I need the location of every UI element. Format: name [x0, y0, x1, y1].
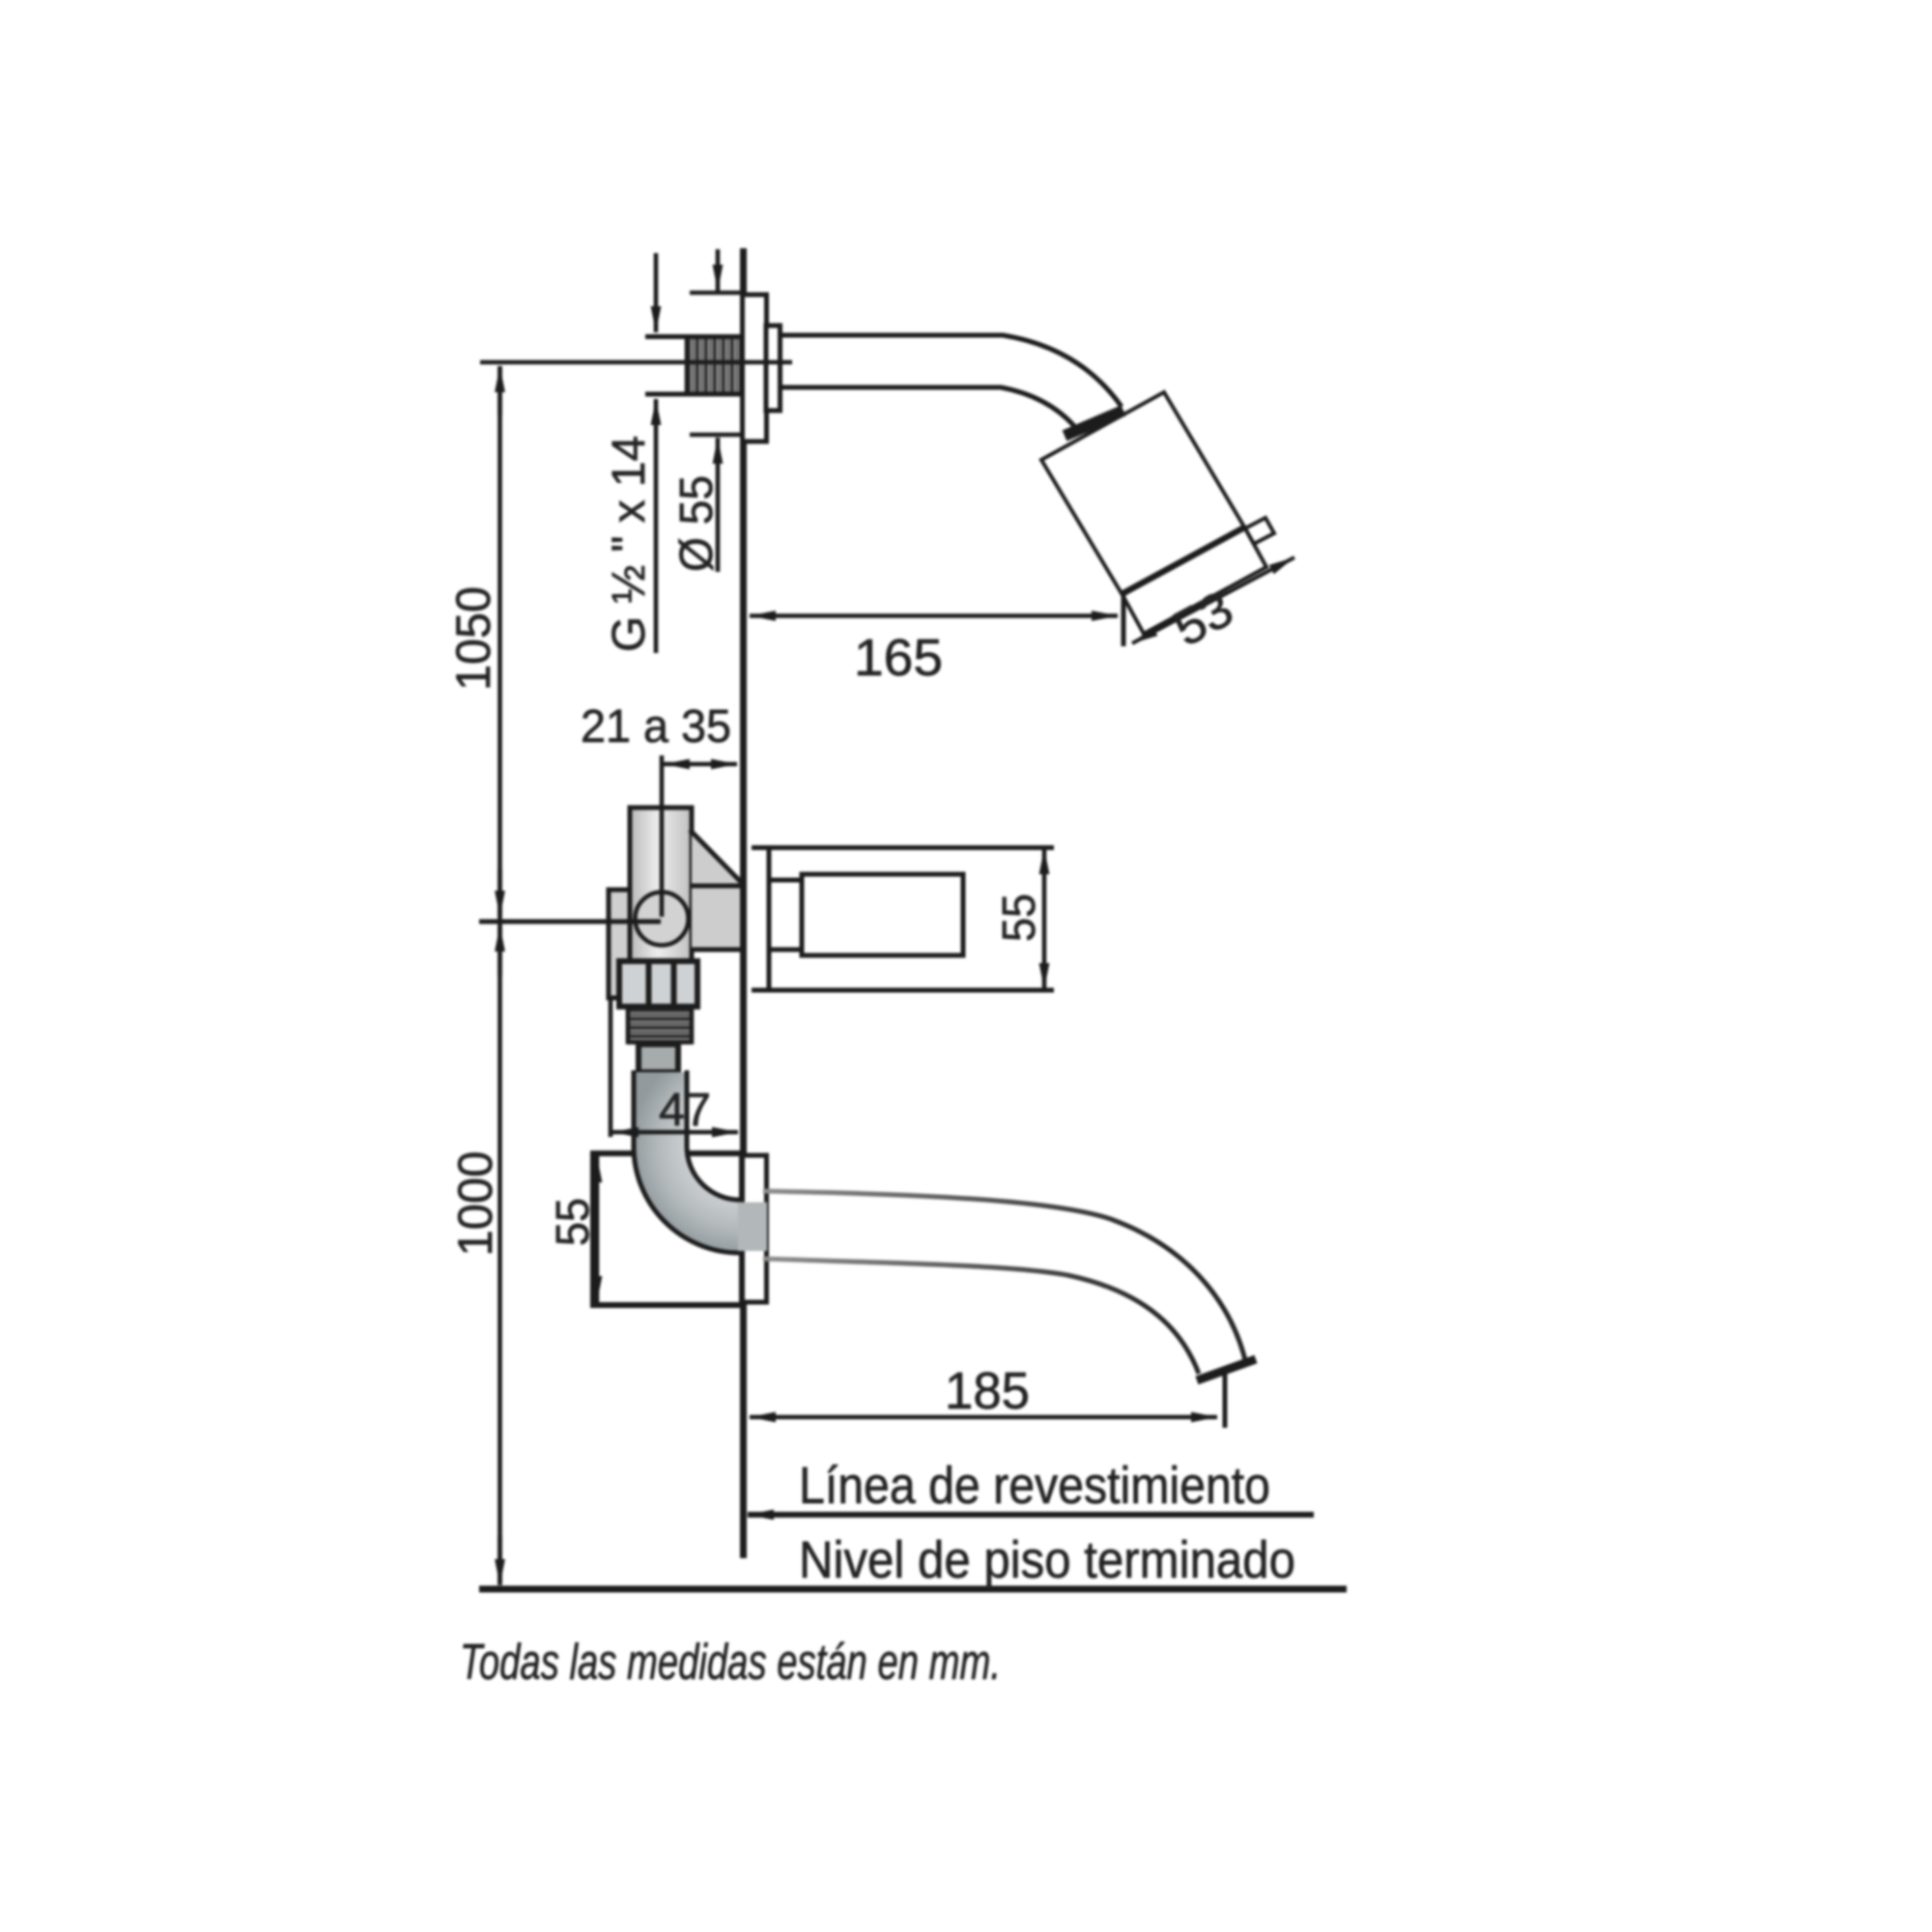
- svg-text:185: 185: [945, 1362, 1030, 1420]
- svg-text:47: 47: [659, 1085, 711, 1136]
- svg-text:1000: 1000: [448, 1151, 502, 1257]
- svg-text:21 a 35: 21 a 35: [581, 701, 731, 753]
- svg-text:Línea de revestimiento: Línea de revestimiento: [799, 1457, 1270, 1515]
- svg-text:55: 55: [994, 894, 1045, 942]
- svg-text:1050: 1050: [446, 586, 500, 691]
- svg-text:Ø 55: Ø 55: [671, 475, 723, 572]
- svg-text:55: 55: [548, 1198, 599, 1246]
- svg-text:Nivel de piso terminado: Nivel de piso terminado: [799, 1531, 1295, 1589]
- svg-text:Todas las medidas están en mm.: Todas las medidas están en mm.: [460, 1634, 1001, 1690]
- svg-text:G ½ " x 14: G ½ " x 14: [604, 436, 655, 652]
- svg-text:165: 165: [854, 629, 943, 687]
